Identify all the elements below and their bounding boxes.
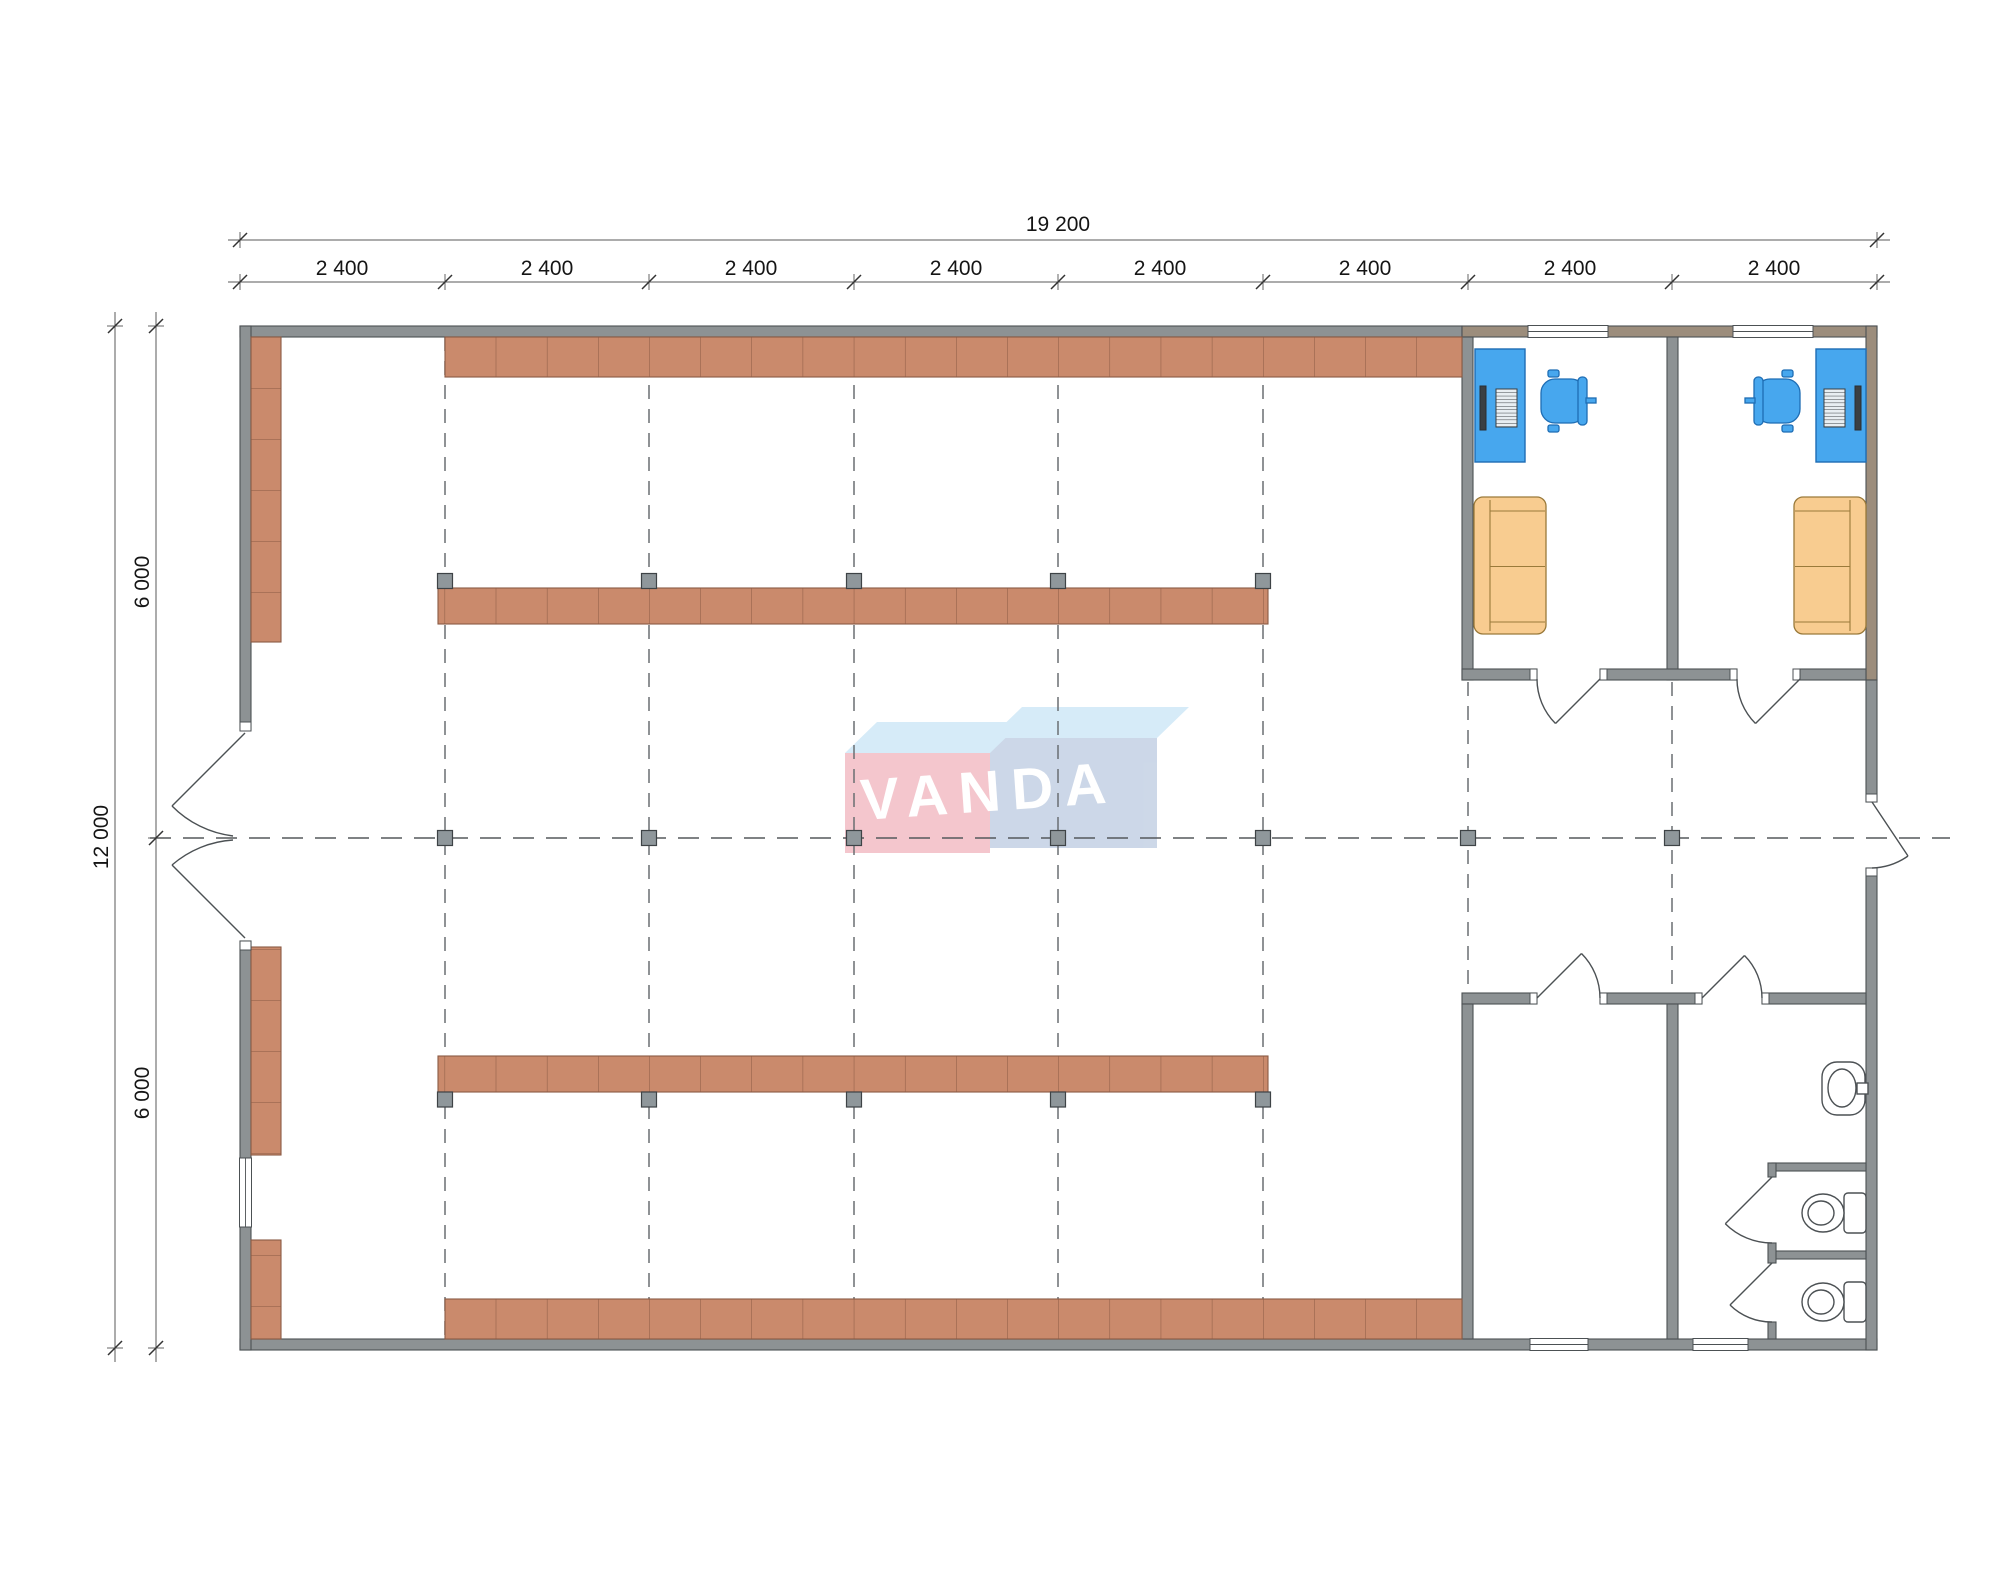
- shelf-left-corner: [251, 1240, 281, 1339]
- backrooms-front-wall-3: [1762, 993, 1866, 1004]
- wall-top-left: [240, 326, 1462, 337]
- toilet-1-icon: [1802, 1193, 1866, 1233]
- dim-total-height-label: 12 000: [90, 805, 113, 869]
- shelf-row-lower-middle: [438, 1056, 1268, 1092]
- sink-icon: [1822, 1062, 1868, 1115]
- office-partition-wall: [1667, 337, 1678, 680]
- window-wc: [1693, 1339, 1748, 1351]
- office-front-wall-1: [1462, 669, 1537, 680]
- dim-seg-label-6: 2 400: [1339, 257, 1392, 280]
- wall-right-offices: [1866, 326, 1877, 680]
- dim-seg-label-7: 2 400: [1544, 257, 1597, 280]
- dim-height-seg-label-2: 6 000: [131, 1067, 154, 1120]
- keyboard-b-icon: [1824, 389, 1845, 427]
- dim-seg-label-3: 2 400: [725, 257, 778, 280]
- backrooms-front-wall-1: [1462, 993, 1537, 1004]
- office-a-left-wall: [1462, 337, 1473, 680]
- wc-stall-stub-2: [1768, 1243, 1776, 1263]
- window-office-a: [1528, 326, 1608, 338]
- window-left-wall: [240, 1158, 252, 1227]
- dim-seg-label-5: 2 400: [1134, 257, 1187, 280]
- wc-stall-wall-2: [1772, 1251, 1866, 1259]
- wall-right-lower: [1866, 868, 1877, 1350]
- keyboard-a-icon: [1496, 389, 1517, 427]
- monitor-b-icon: [1855, 386, 1861, 430]
- shelf-row-top: [445, 337, 1462, 377]
- dim-total-width-label: 19 200: [1026, 213, 1090, 236]
- sofa-b: [1794, 497, 1866, 634]
- floor-plan-drawing: VANDA: [0, 0, 2000, 1574]
- wall-bottom: [240, 1339, 1877, 1350]
- shelf-row-bottom: [445, 1299, 1462, 1339]
- wc-stall-stub-1: [1768, 1163, 1776, 1177]
- office-front-wall-3: [1800, 669, 1866, 680]
- shelf-row-upper-middle: [438, 588, 1268, 624]
- wall-top-offices: [1462, 326, 1877, 337]
- window-office-b: [1733, 326, 1813, 338]
- wall-right-mid: [1866, 680, 1877, 802]
- wall-left-upper: [240, 326, 251, 730]
- vanda-logo: VANDA: [845, 707, 1189, 853]
- floor-plan-canvas: VANDA: [0, 0, 2000, 1574]
- toilet-2-icon: [1802, 1282, 1866, 1322]
- wc-stall-wall-1: [1772, 1163, 1866, 1171]
- wc-stall-stub-3: [1768, 1322, 1776, 1339]
- backrooms-front-wall-2: [1600, 993, 1702, 1004]
- wall-left-lower: [240, 941, 251, 1158]
- sofa-a: [1474, 497, 1546, 634]
- monitor-a-icon: [1480, 386, 1486, 430]
- shelf-left-upper: [251, 337, 281, 642]
- dim-seg-label-1: 2 400: [316, 257, 369, 280]
- dim-seg-label-8: 2 400: [1748, 257, 1801, 280]
- storage-left-wall: [1462, 1004, 1473, 1339]
- dim-seg-label-4: 2 400: [930, 257, 983, 280]
- dim-seg-label-2: 2 400: [521, 257, 574, 280]
- office-front-wall-2: [1600, 669, 1737, 680]
- storage-wc-partition: [1667, 1004, 1678, 1339]
- window-storage: [1530, 1339, 1588, 1351]
- shelf-left-lower: [251, 947, 281, 1155]
- dim-height-seg-label-1: 6 000: [131, 556, 154, 609]
- wall-left-corner: [240, 1227, 251, 1350]
